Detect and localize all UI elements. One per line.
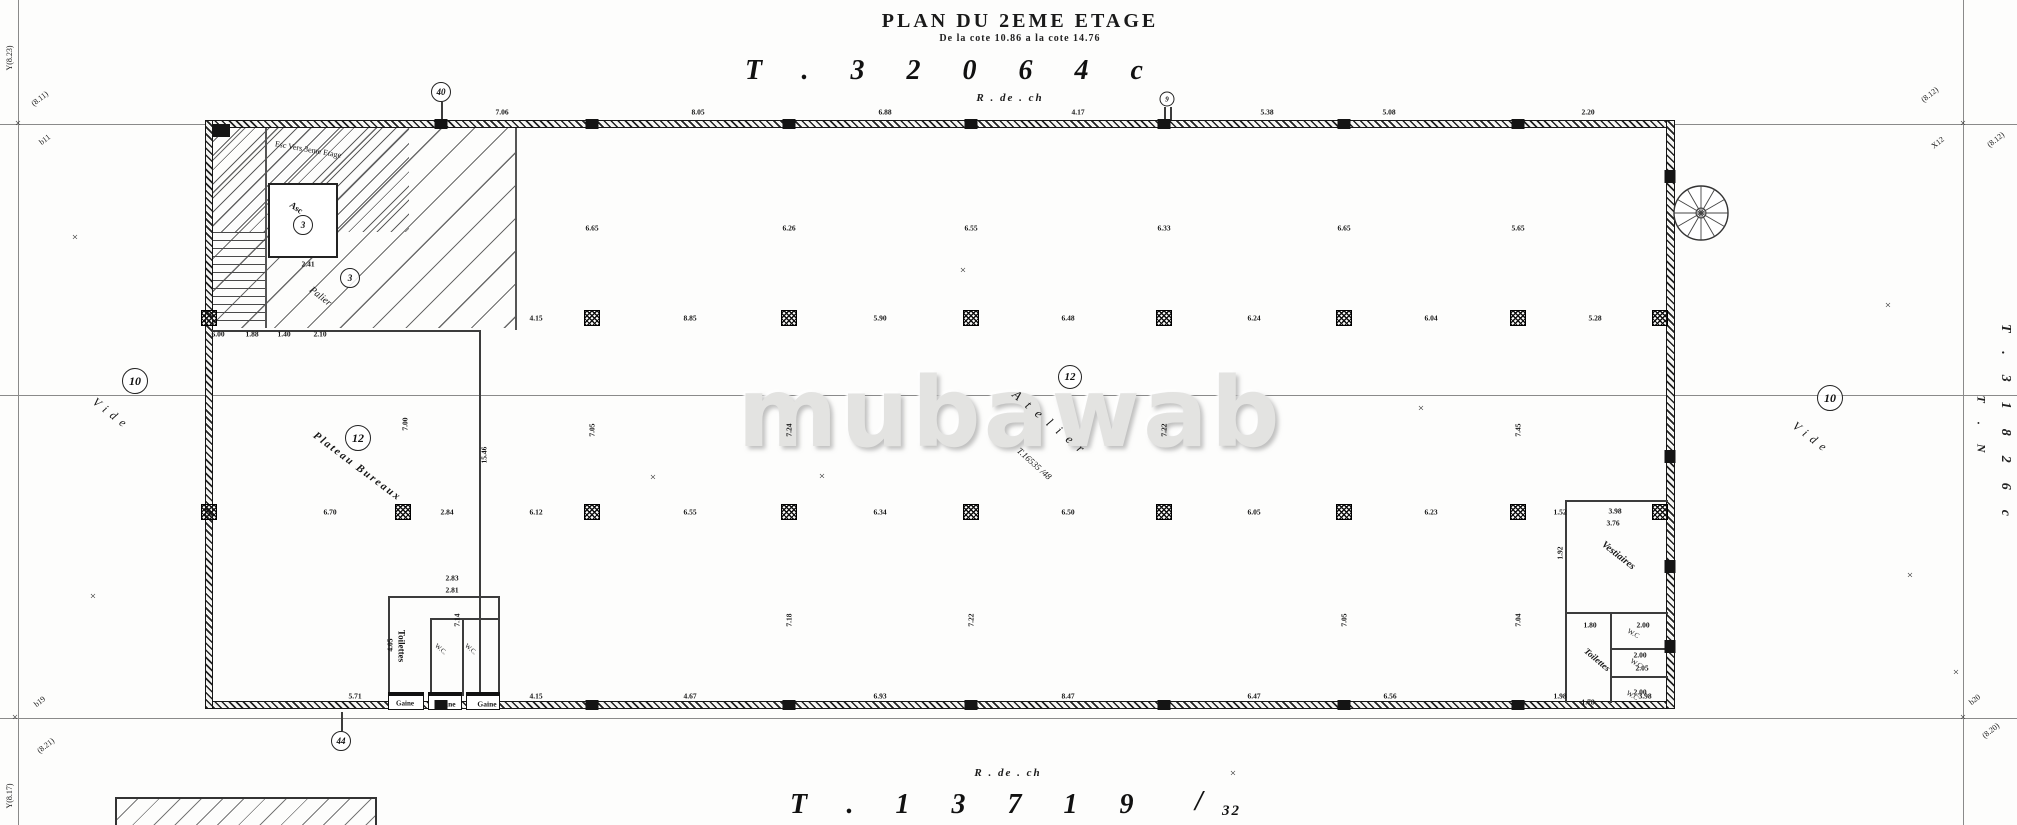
grid-bubble: 10 [122, 368, 148, 394]
grid-bubble: 44 [331, 731, 351, 751]
dimension-label: 4.15 [529, 314, 542, 322]
x-mark: × [1960, 119, 1966, 130]
dimension-label: 5.71 [348, 692, 361, 700]
column [201, 310, 217, 326]
floorplan-sheet: mubawab PLAN DU 2EME ETAGE De la cote 10… [0, 0, 2017, 825]
wall-column [586, 700, 599, 710]
dimension-label: 6.04 [1424, 314, 1437, 322]
wall-column [1665, 170, 1676, 183]
dimension-label: 7.22 [967, 613, 975, 626]
dimension-label: 4.05 [386, 638, 394, 651]
room-label: Gaine [477, 700, 496, 708]
column [201, 504, 217, 520]
grid-bubble: 10 [1817, 385, 1843, 411]
grid-bubble: 9 [1160, 92, 1175, 107]
dimension-label: 7.22 [1160, 423, 1168, 436]
x-mark: × [12, 713, 18, 724]
dimension-label: 2.81 [445, 586, 458, 594]
dimension-label: 6.33 [1157, 224, 1170, 232]
wall-column [783, 700, 796, 710]
dimension-label: 5.08 [1382, 108, 1395, 116]
column [1336, 310, 1352, 326]
dimension-label: 6.88 [878, 108, 891, 116]
dimension-label: 2.10 [313, 330, 326, 338]
dimension-label: 3.98 [1608, 507, 1621, 515]
x-mark: × [1953, 668, 1959, 679]
dimension-label: 4.67 [683, 692, 696, 700]
dimension-label: 1.88 [245, 330, 258, 338]
column [1156, 504, 1172, 520]
wall-column [1665, 560, 1676, 573]
dimension-label: 8.47 [1061, 692, 1074, 700]
wall-column [783, 119, 796, 129]
column [781, 310, 797, 326]
dimension-label: 1.98 [1553, 692, 1566, 700]
dimension-label: 5.28 [1588, 314, 1601, 322]
column [963, 310, 979, 326]
dimension-label: 6.00 [211, 330, 224, 338]
dimension-label: 6.26 [782, 224, 795, 232]
dimension-label: 15.46 [480, 447, 488, 464]
dimension-label: 7.18 [785, 613, 793, 626]
column [584, 310, 600, 326]
x-mark: × [1960, 713, 1966, 724]
dimension-label: 6.65 [1337, 224, 1350, 232]
dimension-label: 1.78 [1581, 698, 1594, 706]
room-label: b11 [38, 133, 52, 147]
room-label: Palier [307, 285, 333, 308]
dimension-label: 6.55 [683, 508, 696, 516]
grid-bubble: 12 [1058, 365, 1082, 389]
wall-column [965, 119, 978, 129]
dimension-label: 7.00 [401, 417, 409, 430]
room-label: Vestiaires [1599, 540, 1636, 572]
dimension-label: 6.93 [873, 692, 886, 700]
x-mark: × [819, 472, 825, 483]
dimension-label: 6.24 [1247, 314, 1260, 322]
room-label: W.C [1626, 628, 1640, 640]
x-mark: × [90, 592, 96, 603]
dimension-label: 6.48 [1061, 314, 1074, 322]
wall-column [965, 700, 978, 710]
dimension-label: 7.06 [495, 108, 508, 116]
x-mark: × [1418, 404, 1424, 415]
column [1652, 504, 1668, 520]
dimension-label: 7.05 [1340, 613, 1348, 626]
dimension-label: 1.92 [1556, 546, 1564, 559]
column [395, 504, 411, 520]
wall-column [1338, 700, 1351, 710]
dimension-label: 1.40 [277, 330, 290, 338]
grid-bubble: 3 [340, 268, 360, 288]
dimension-label: 6.65 [585, 224, 598, 232]
dimension-label: 8.05 [691, 108, 704, 116]
room-label: Vide [1791, 419, 1834, 456]
room-label: (8.11) [30, 90, 50, 108]
column [584, 504, 600, 520]
room-label: Esc Vers 3eme Etage [274, 140, 342, 160]
wall-column [1338, 119, 1351, 129]
dimension-label: 6.55 [964, 224, 977, 232]
room-label: (8.20) [1981, 722, 2001, 740]
dimension-label: 2.83 [445, 574, 458, 582]
column [781, 504, 797, 520]
room-label: (8.12) [1920, 86, 1940, 104]
x-mark: × [1230, 769, 1236, 780]
dimension-label: 5.65 [1511, 224, 1524, 232]
dimension-label: 5.90 [873, 314, 886, 322]
annotation-layer: 7.068.056.884.175.385.082.206.656.266.55… [0, 0, 2017, 825]
x-mark: × [72, 233, 78, 244]
dimension-label: 2.84 [440, 508, 453, 516]
room-label: W.C. [463, 643, 477, 656]
dimension-label: 2.41 [301, 260, 314, 268]
room-label: b19 [33, 695, 47, 709]
wall-column [1158, 119, 1171, 129]
wall-column [435, 700, 448, 710]
dimension-label: 6.34 [873, 508, 886, 516]
wall-column [435, 119, 448, 129]
room-label: Vide [91, 395, 134, 432]
grid-bubble: 40 [431, 82, 451, 102]
room-label: Toilettes [397, 630, 406, 662]
dimension-label: 6.70 [323, 508, 336, 516]
room-label: (8.21) [36, 737, 56, 755]
dimension-label: 7.14 [453, 613, 461, 626]
room-label: Y(8.17) [6, 783, 14, 808]
dimension-label: 4.17 [1071, 108, 1084, 116]
room-label: (8.12) [1986, 131, 2006, 149]
dimension-label: 7.45 [1514, 423, 1522, 436]
room-label: X12 [1930, 136, 1946, 151]
dimension-label: 7.24 [785, 423, 793, 436]
dimension-label: 6.23 [1424, 508, 1437, 516]
x-mark: × [650, 473, 656, 484]
grid-bubble: 3 [293, 215, 313, 235]
column [963, 504, 979, 520]
wall-column [1665, 450, 1676, 463]
column [1336, 504, 1352, 520]
x-mark: × [960, 266, 966, 277]
dimension-label: 6.50 [1061, 508, 1074, 516]
wall-column [1665, 640, 1676, 653]
dimension-label: 6.05 [1247, 508, 1260, 516]
dimension-label: 3.76 [1606, 519, 1619, 527]
dimension-label: 7.04 [1514, 613, 1522, 626]
room-label: T.16535 /48 [1015, 446, 1053, 481]
dimension-label: 6.47 [1247, 692, 1260, 700]
dimension-label: 8.85 [683, 314, 696, 322]
wall-column [586, 119, 599, 129]
room-label: W.C. [433, 643, 447, 656]
dimension-label: 2.20 [1581, 108, 1594, 116]
x-mark: × [1885, 301, 1891, 312]
grid-bubble: 12 [345, 425, 371, 451]
dimension-label: 4.15 [529, 692, 542, 700]
dimension-label: 6.56 [1383, 692, 1396, 700]
dimension-label: 1.80 [1583, 621, 1596, 629]
column [1510, 504, 1526, 520]
room-label: Gaine [396, 701, 414, 708]
dimension-label: 1.52 [1553, 508, 1566, 516]
wall-column [1512, 119, 1525, 129]
dimension-label: 2.00 [1636, 621, 1649, 629]
x-mark: × [15, 119, 21, 130]
column [1652, 310, 1668, 326]
wall-column [1158, 700, 1171, 710]
dimension-label: 6.12 [529, 508, 542, 516]
room-label: Asc [288, 200, 305, 215]
room-label: Y(8.23) [6, 45, 14, 70]
x-mark: × [1907, 571, 1913, 582]
dimension-label: 7.05 [588, 423, 596, 436]
room-label: Toilettes [1582, 647, 1611, 674]
dimension-label: 5.38 [1260, 108, 1273, 116]
column [1156, 310, 1172, 326]
column [1510, 310, 1526, 326]
room-label: b20 [1968, 693, 1982, 707]
wall-column [1512, 700, 1525, 710]
